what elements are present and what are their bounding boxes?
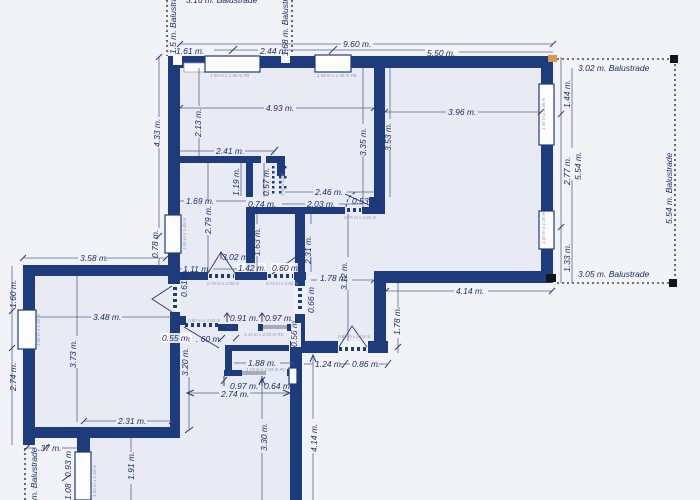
svg-text:9.60 m.: 9.60 m.: [343, 39, 371, 49]
svg-text:1.60 m.: 1.60 m.: [8, 280, 18, 308]
svg-text:2.13 m.: 2.13 m.: [193, 109, 203, 138]
svg-text:2.79 m.: 2.79 m.: [203, 206, 213, 235]
svg-text:1.78 m.: 1.78 m.: [392, 307, 402, 335]
svg-text:5.54 m.: 5.54 m.: [573, 152, 583, 180]
svg-text:. 60 m.: . 60 m.: [196, 334, 222, 344]
svg-text:4.93 m.: 4.93 m.: [266, 103, 294, 113]
svg-text:1.19 m.: 1.19 m.: [231, 168, 241, 196]
svg-text:0.55 m.: 0.55 m.: [162, 333, 190, 343]
svg-text:0.93 m: 0.93 m: [63, 451, 73, 477]
svg-text:0.78 m.: 0.78 m.: [150, 230, 160, 258]
svg-text:2.41 m.: 2.41 m.: [215, 146, 244, 156]
svg-text:2.46 m.: 2.46 m.: [314, 187, 343, 197]
svg-text:1.42 m.: 1.42 m.: [238, 263, 266, 273]
svg-text:4.33 m.: 4.33 m.: [152, 119, 162, 147]
svg-text:0.53 m.: 0.53 m.: [352, 196, 380, 206]
svg-text:2.31 m.: 2.31 m.: [117, 416, 146, 426]
svg-text:1.61 m.: 1.61 m.: [176, 46, 204, 56]
svg-text:0.75 m x 2.03 m: 0.75 m x 2.03 m: [266, 281, 299, 286]
svg-text:0.75 m x 2.03 m: 0.75 m x 2.03 m: [344, 215, 377, 220]
svg-text:0.66 m: 0.66 m: [306, 287, 316, 313]
svg-text:0.80 m x 2.03 m: 0.80 m x 2.03 m: [188, 318, 221, 323]
svg-text:m. Balustrade: m. Balustrade: [29, 447, 39, 500]
svg-text:3.16 m. Balustrade: 3.16 m. Balustrade: [186, 0, 258, 5]
svg-text:0.91 m.: 0.91 m.: [230, 313, 258, 323]
svg-text:3.73 m.: 3.73 m.: [68, 340, 78, 368]
svg-text:0.50 x 0.50: 0.50 x 0.50: [280, 173, 285, 196]
svg-text:1.00 m x 1.45 m: 1.00 m x 1.45 m: [36, 313, 41, 346]
svg-text:3.30 m.: 3.30 m.: [259, 423, 269, 451]
svg-text:1.08: 1.08: [63, 483, 73, 500]
svg-text:1.50 m x 1.45 m: 1.50 m x 1.45 m: [541, 97, 546, 130]
svg-text:5.50 m.: 5.50 m.: [427, 48, 455, 58]
svg-text:0.64 m: 0.64 m: [264, 381, 290, 391]
svg-text:3.35 m.: 3.35 m.: [358, 128, 368, 156]
svg-text:2.31 m.: 2.31 m.: [303, 236, 313, 265]
svg-text:1.91 m.: 1.91 m.: [126, 452, 136, 480]
svg-text:.37 m.: .37 m.: [38, 443, 62, 453]
svg-text:3.02 m. Balustrade: 3.02 m. Balustrade: [578, 63, 650, 73]
svg-text:0.86 m.: 0.86 m.: [352, 359, 380, 369]
svg-text:2.77 m.: 2.77 m.: [562, 157, 572, 186]
svg-text:3.58 m.: 3.58 m.: [80, 253, 108, 263]
svg-text:1.44 m.: 1.44 m.: [562, 80, 572, 108]
svg-text:1.69 m.: 1.69 m.: [186, 196, 214, 206]
svg-text:1.63 m.: 1.63 m.: [252, 228, 262, 256]
svg-text:4.14 m.: 4.14 m.: [309, 424, 319, 452]
svg-text:0.74 m.: 0.74 m.: [248, 199, 276, 209]
svg-text:2.74 m.: 2.74 m.: [220, 389, 249, 399]
svg-text:5.54 m. Balustrade: 5.54 m. Balustrade: [664, 152, 674, 224]
svg-text:2.44 m.: 2.44 m.: [259, 46, 288, 56]
svg-text:1.00 m x 1.45 m: 1.00 m x 1.45 m: [541, 211, 546, 244]
svg-text:2.03 m.: 2.03 m.: [306, 199, 335, 209]
svg-text:0.75 m x 2.03 m: 0.75 m x 2.03 m: [207, 281, 240, 286]
svg-text:1.00 m x 1.45 m FB: 1.00 m x 1.45 m FB: [317, 73, 356, 78]
svg-text:1.50 m x 1.45 m FB: 1.50 m x 1.45 m FB: [210, 73, 249, 78]
svg-text:4.14 m.: 4.14 m.: [456, 286, 484, 296]
svg-text:1.24 m.: 1.24 m.: [315, 359, 343, 369]
svg-text:3.02 m: 3.02 m: [222, 252, 248, 262]
svg-text:3.48 m.: 3.48 m.: [93, 312, 121, 322]
svg-text:1.33 m.: 1.33 m.: [562, 244, 572, 272]
svg-text:0.57 m.: 0.57 m.: [261, 168, 271, 196]
svg-text:0.61 m.: 0.61 m.: [179, 269, 189, 297]
svg-text:2.74 m.: 2.74 m.: [8, 363, 18, 392]
svg-text:1.78 m.: 1.78 m.: [320, 273, 348, 283]
svg-text:1.74 m x 2.03 m RC: 1.74 m x 2.03 m RC: [246, 367, 287, 372]
svg-text:3.53 m.: 3.53 m.: [383, 123, 393, 151]
svg-text:1.00 m x 1.45 m: 1.00 m x 1.45 m: [92, 464, 97, 497]
svg-text:3.05 m. Balustrade: 3.05 m. Balustrade: [578, 269, 650, 279]
svg-text:1.00 m x 1.45 m: 1.00 m x 1.45 m: [182, 217, 187, 250]
svg-text:3.20 m.: 3.20 m.: [180, 348, 190, 376]
svg-text:0.56 m.: 0.56 m.: [289, 319, 299, 347]
svg-text:0.60 m: 0.60 m: [272, 263, 298, 273]
svg-text:1.13 m x 2.03 m RC: 1.13 m x 2.03 m RC: [244, 332, 285, 337]
svg-text:3.96 m.: 3.96 m.: [448, 107, 476, 117]
svg-text:0.80 m x 2.03 m: 0.80 m x 2.03 m: [338, 334, 371, 339]
